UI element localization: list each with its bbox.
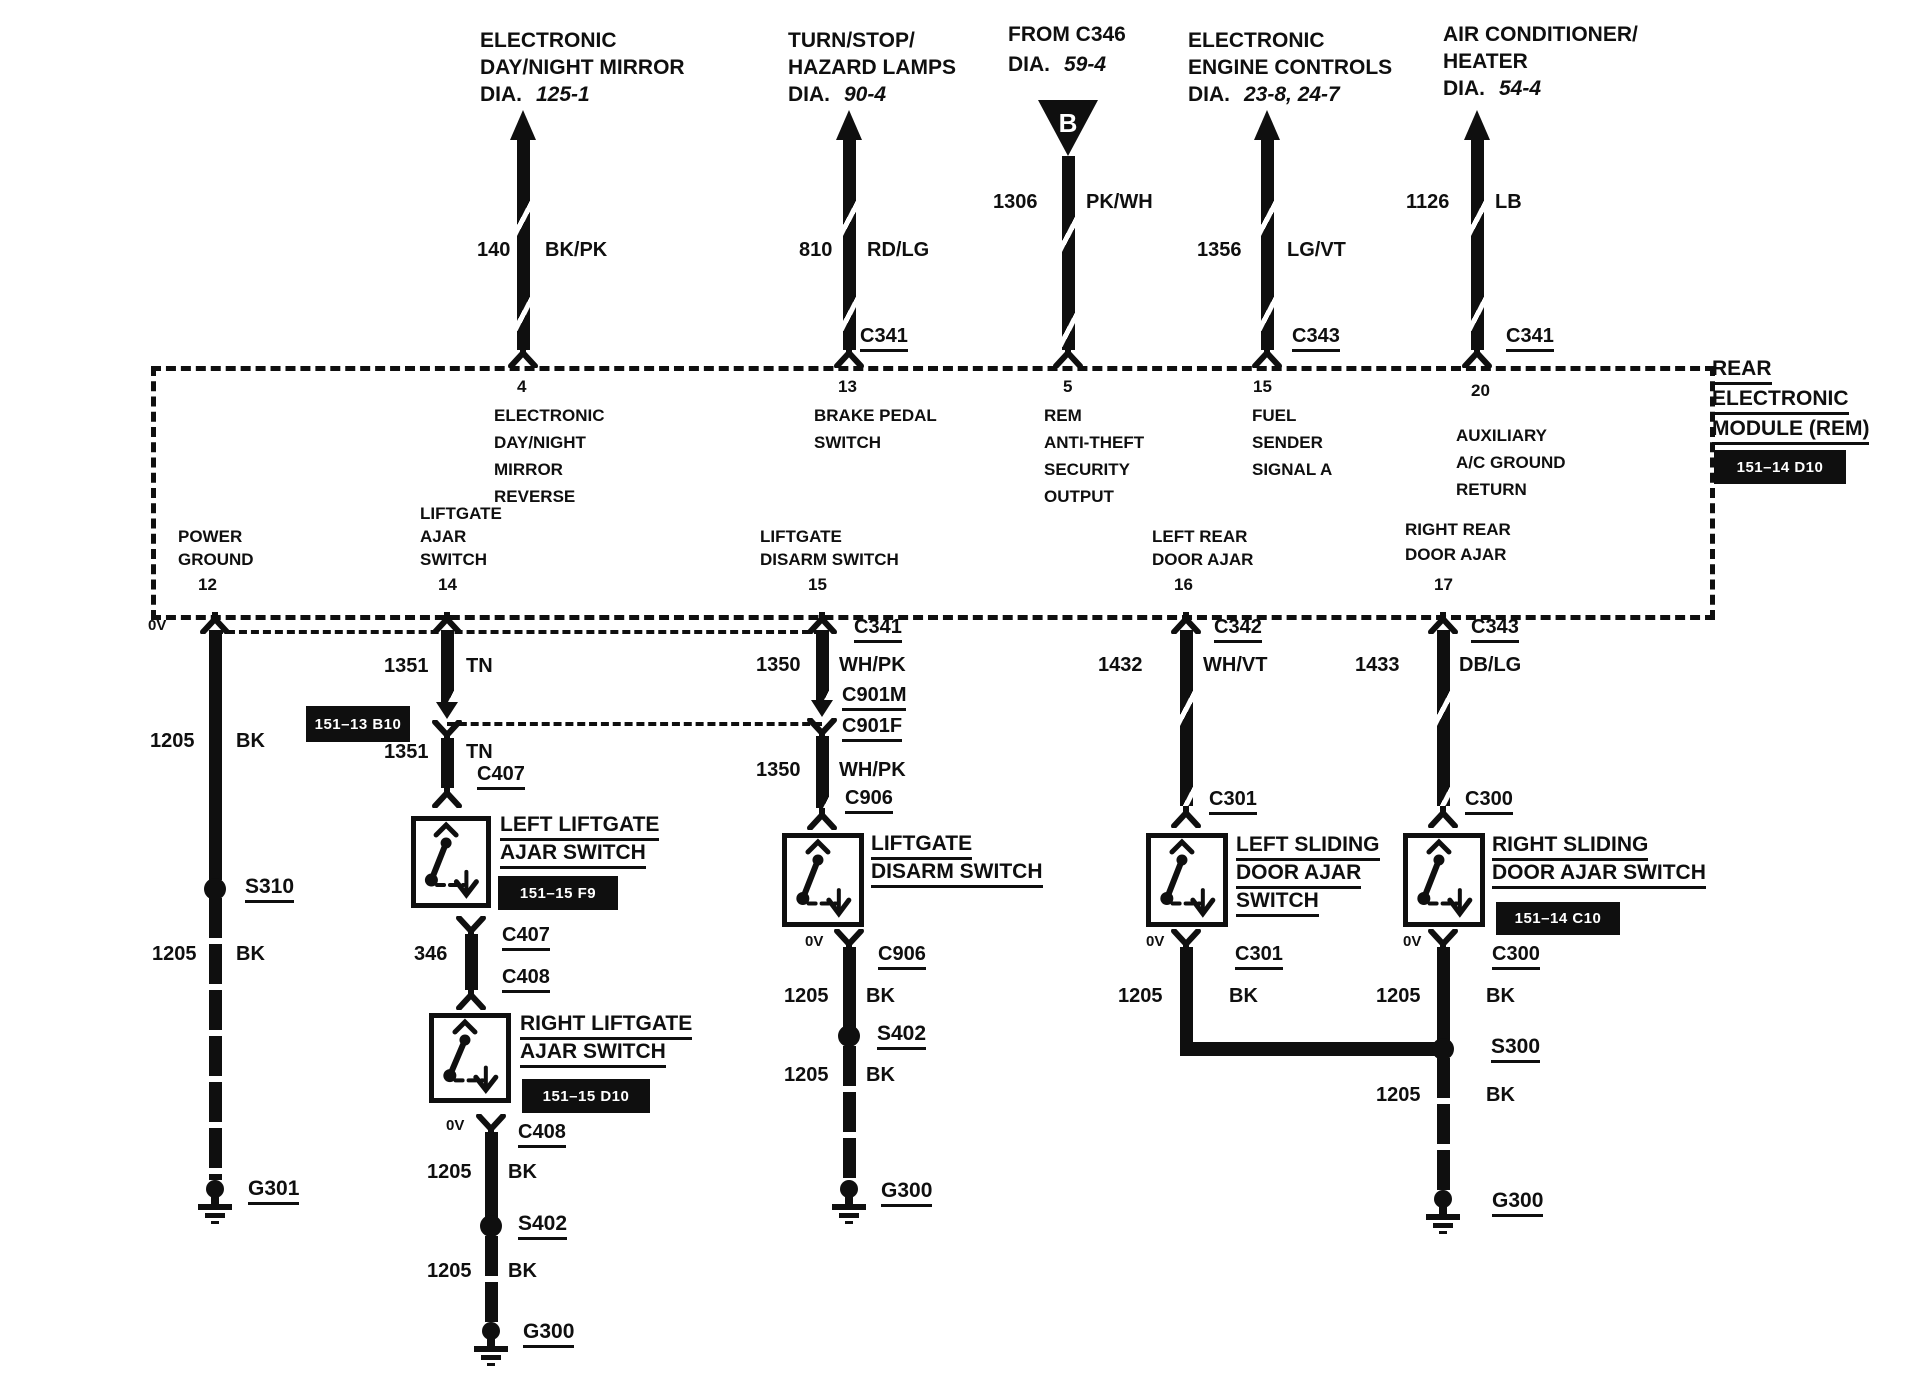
disarm-zero-volt: 0V — [805, 934, 823, 950]
mirror-circuit-title-line2-text: DAY/NIGHT MIRROR — [480, 56, 685, 79]
splice-s402-disarm-label-text: S402 — [877, 1023, 926, 1050]
rem-module-name-line3: MODULE (REM) — [1712, 418, 1869, 445]
pin13-number: 13 — [838, 378, 857, 396]
wire-140-number: 140 — [477, 240, 510, 261]
wire-1433-color: DB/LG — [1459, 655, 1521, 676]
wire-1126-number-text: 1126 — [1406, 191, 1449, 213]
mirror-circuit-title-line1-text: ELECTRONIC — [480, 29, 617, 52]
wire-1205-disarm-upper-color: BK — [866, 986, 895, 1007]
pin17-number: 17 — [1434, 576, 1453, 594]
from-c346-dia-value: 59-4 — [1064, 53, 1106, 76]
engine-controls-title-line2-text: ENGINE CONTROLS — [1188, 56, 1392, 79]
wire-1306-color: PK/WH — [1086, 192, 1153, 213]
wire-1433-number-text: 1433 — [1355, 654, 1400, 676]
wire-1350-upper — [816, 630, 829, 700]
pin20-desc-line2: A/C GROUND — [1456, 454, 1566, 472]
wire-1205-joining-run — [1180, 1042, 1450, 1056]
pin4-number: 4 — [517, 378, 526, 396]
left-sliding-door-switch-name3: SWITCH — [1236, 890, 1319, 917]
from-c346-title-text: FROM C346 — [1008, 23, 1126, 46]
pin4-number-text: 4 — [517, 377, 526, 396]
splice-s402-liftgate — [480, 1215, 502, 1237]
liftgate-disarm-switch-name1: LIFTGATE — [871, 833, 972, 860]
ground-g300-sliding-label: G300 — [1492, 1190, 1543, 1217]
turn-stop-title-line2-text: HAZARD LAMPS — [788, 56, 956, 79]
wire-1351-male-arrow — [436, 702, 458, 719]
left-sliding-zero-volt: 0V — [1146, 934, 1164, 950]
wire-1205-left-sliding-color-text: BK — [1229, 985, 1258, 1007]
wire-1306-number-text: 1306 — [993, 191, 1038, 213]
wire-1350-lower-color: WH/PK — [839, 760, 906, 781]
wire-1351-upper-number-text: 1351 — [384, 655, 429, 677]
right-liftgate-ajar-switch-name2: AJAR SWITCH — [520, 1041, 666, 1068]
wire-1350-lower-number-text: 1350 — [756, 759, 801, 781]
splice-s402-disarm — [838, 1025, 860, 1047]
connector-c343-rem-label: C343 — [1471, 617, 1519, 643]
pin13-desc-line1: BRAKE PEDAL — [814, 407, 937, 425]
wire-1205-disarm-lower — [843, 1046, 856, 1180]
wire-1350-lower-color-text: WH/PK — [839, 759, 906, 781]
from-c346-dia-text: DIA. — [1008, 53, 1050, 76]
splice-s300-label: S300 — [1491, 1036, 1540, 1063]
ground-g300-sliding-label-text: G300 — [1492, 1190, 1543, 1217]
pin4-desc-line2: DAY/NIGHT — [494, 434, 586, 452]
ac-heater-title-line2-text: HEATER — [1443, 50, 1528, 73]
ac-heater-dia: DIA.54-4 — [1443, 78, 1541, 100]
connector-c343-engine-label-text: C343 — [1292, 326, 1340, 352]
pin20-desc-line1: AUXILIARY — [1456, 427, 1547, 445]
wire-1356-number: 1356 — [1197, 240, 1242, 261]
wire-1205-disarm-lower-number: 1205 — [784, 1065, 829, 1086]
ac-heater-title-line1: AIR CONDITIONER/ — [1443, 24, 1638, 46]
pin20-desc-line3: RETURN — [1456, 481, 1527, 499]
rem-module-name-line3-text: MODULE (REM) — [1712, 418, 1869, 445]
left-sliding-door-ajar-switch-box — [1146, 833, 1228, 927]
right-sliding-door-switch-name2-text: DOOR AJAR SWITCH — [1492, 862, 1706, 889]
pin15-top-desc-line1-text: FUEL — [1252, 406, 1296, 425]
pin14-desc-line1-text: LIFTGATE — [420, 504, 502, 523]
wire-1205-right-sliding-lower-color-text: BK — [1486, 1084, 1515, 1106]
connector-c906-upper-label: C906 — [845, 788, 893, 814]
wire-1350-upper-color: WH/PK — [839, 655, 906, 676]
grid-ref-151-13-b10: 151–13 B10 — [306, 706, 410, 742]
ground-g301-symbol — [197, 1180, 233, 1229]
turn-stop-dia-value: 90-4 — [844, 83, 886, 106]
connector-c301-lower-label: C301 — [1235, 944, 1283, 970]
wire-1205-left-sliding-number-text: 1205 — [1118, 985, 1163, 1007]
wire-1351-upper — [441, 630, 454, 702]
wire-1432-color: WH/VT — [1203, 655, 1267, 676]
engine-controls-title-line1: ELECTRONIC — [1188, 30, 1325, 52]
wire-1306-color-text: PK/WH — [1086, 191, 1153, 213]
wire-1205-right-sliding-lower-number: 1205 — [1376, 1085, 1421, 1106]
rem-module-grid-ref: 151–14 D10 — [1714, 450, 1846, 484]
ground-g301-label-text: G301 — [248, 1178, 299, 1205]
pin15-desc-line2: DISARM SWITCH — [760, 551, 899, 569]
wire-1205-right-sliding-number: 1205 — [1376, 986, 1421, 1007]
wire-1350-lower-number: 1350 — [756, 760, 801, 781]
right-liftgate-ajar-switch-name2-text: AJAR SWITCH — [520, 1041, 666, 1068]
wire-140 — [517, 140, 530, 350]
pin15-number: 15 — [808, 576, 827, 594]
right-sliding-door-switch-name1-text: RIGHT SLIDING — [1492, 834, 1648, 861]
pin15-top-number: 15 — [1253, 378, 1272, 396]
wire-1205-disarm-lower-color: BK — [866, 1065, 895, 1086]
pin16-desc-line1-text: LEFT REAR — [1152, 527, 1247, 546]
pin15-number-text: 15 — [808, 575, 827, 594]
rem-module-name-line1: REAR — [1712, 358, 1772, 385]
pin15-top-desc-line3: SIGNAL A — [1252, 461, 1332, 479]
wire-1205-pin12-lower-number: 1205 — [152, 944, 197, 965]
pin12-desc-line2-text: GROUND — [178, 550, 254, 569]
splice-s402-liftgate-label-text: S402 — [518, 1213, 567, 1240]
connector-c906-upper-fork — [806, 808, 838, 835]
grid-ref-151-15-d10: 151–15 D10 — [522, 1079, 650, 1113]
rem-module-name-line2-text: ELECTRONIC — [1712, 388, 1849, 415]
wire-1205-pin12-lower-color-text: BK — [236, 943, 265, 965]
wire-1351-lower-color-text: TN — [466, 741, 493, 763]
connector-c301-upper-label: C301 — [1209, 789, 1257, 815]
mirror-circuit-dia-text: DIA. — [480, 83, 522, 106]
pin14-number: 14 — [438, 576, 457, 594]
left-liftgate-ajar-switch-name2: AJAR SWITCH — [500, 842, 646, 869]
connector-c906-lower-label: C906 — [878, 944, 926, 970]
connector-c407-lower-label-text: C407 — [502, 925, 550, 951]
wire-1351-lower — [441, 738, 454, 788]
wire-1205-right-sliding-lower-number-text: 1205 — [1376, 1084, 1421, 1106]
pin15-top-desc-line2-text: SENDER — [1252, 433, 1323, 452]
wire-1432 — [1180, 630, 1193, 806]
pin16-number-text: 16 — [1174, 575, 1193, 594]
wire-346 — [465, 934, 478, 990]
wire-1205-right-sliding-color-text: BK — [1486, 985, 1515, 1007]
mirror-circuit-title-line1: ELECTRONIC — [480, 30, 617, 52]
ground-g300-liftgate-label: G300 — [523, 1321, 574, 1348]
pin14-desc-line2: AJAR — [420, 528, 466, 546]
wire-810-color-text: RD/LG — [867, 239, 929, 261]
zero-volt-reference-line — [215, 630, 822, 634]
wire-1205-pin12-lower-color: BK — [236, 944, 265, 965]
ac-heater-dia-text: DIA. — [1443, 77, 1485, 100]
connector-c300-upper-label-text: C300 — [1465, 789, 1513, 815]
inline-connector-reference-line — [447, 722, 822, 726]
wire-1205-right-sliding-color: BK — [1486, 986, 1515, 1007]
wire-810-number: 810 — [799, 240, 832, 261]
connector-c300-lower-label: C300 — [1492, 944, 1540, 970]
turn-stop-title-line1-text: TURN/STOP/ — [788, 29, 915, 52]
wire-1350-upper-number-text: 1350 — [756, 654, 801, 676]
pin13-number-text: 13 — [838, 377, 857, 396]
connector-c341-ac-label: C341 — [1506, 326, 1554, 352]
pin12-number-text: 12 — [198, 575, 217, 594]
wire-1356-number-text: 1356 — [1197, 239, 1242, 261]
right-sliding-door-switch-name1: RIGHT SLIDING — [1492, 834, 1648, 861]
wire-346-number: 346 — [414, 944, 447, 965]
grid-ref-151-14-c10: 151–14 C10 — [1496, 902, 1620, 935]
from-c346-title: FROM C346 — [1008, 24, 1126, 46]
pin20-desc-line2-text: A/C GROUND — [1456, 453, 1566, 472]
splice-s300-label-text: S300 — [1491, 1036, 1540, 1063]
pin12-desc-line2: GROUND — [178, 551, 254, 569]
pin5-desc-line2: ANTI-THEFT — [1044, 434, 1144, 452]
grid-ref-151-15-f9: 151–15 F9 — [498, 876, 618, 910]
pin15-top-desc-line2: SENDER — [1252, 434, 1323, 452]
wire-1351-upper-color: TN — [466, 656, 493, 677]
connector-c342-label-text: C342 — [1214, 617, 1262, 643]
right-sliding-zero-volt-text: 0V — [1403, 933, 1421, 950]
pin4-desc-line4-text: REVERSE — [494, 487, 575, 506]
pin12-desc-line1-text: POWER — [178, 527, 242, 546]
wire-1126-color-text: LB — [1495, 191, 1522, 213]
wire-1205-liftgate-upper-color: BK — [508, 1162, 537, 1183]
liftgate-disarm-switch-box — [782, 833, 864, 927]
pin20-desc-line3-text: RETURN — [1456, 480, 1527, 499]
wire-1205-liftgate-upper-number: 1205 — [427, 1162, 472, 1183]
pin5-number: 5 — [1063, 378, 1072, 396]
pin4-desc-line3-text: MIRROR — [494, 460, 563, 479]
wire-1350-upper-color-text: WH/PK — [839, 654, 906, 676]
connector-c906-lower-label-text: C906 — [878, 944, 926, 970]
connector-c343-rem-label-text: C343 — [1471, 617, 1519, 643]
ground-g301-label: G301 — [248, 1178, 299, 1205]
wire-1205-left-sliding-color: BK — [1229, 986, 1258, 1007]
wire-140-color: BK/PK — [545, 240, 607, 261]
left-liftgate-ajar-switch-name1: LEFT LIFTGATE — [500, 814, 659, 841]
connector-c341-ac-label-text: C341 — [1506, 326, 1554, 352]
wire-810 — [843, 140, 856, 350]
wire-1205-disarm-upper-number-text: 1205 — [784, 985, 829, 1007]
connector-c901m-label-text: C901M — [842, 685, 906, 711]
connector-c300-upper-label: C300 — [1465, 789, 1513, 815]
wire-1351-lower-number: 1351 — [384, 742, 429, 763]
connector-c901f-label: C901F — [842, 716, 902, 742]
left-sliding-door-switch-name2: DOOR AJAR — [1236, 862, 1361, 889]
left-sliding-door-switch-name1-text: LEFT SLIDING — [1236, 834, 1380, 861]
left-sliding-door-switch-name1: LEFT SLIDING — [1236, 834, 1380, 861]
pin12-zero-volt-text: 0V — [148, 617, 166, 634]
right-sliding-zero-volt: 0V — [1403, 934, 1421, 950]
pin5-desc-line1: REM — [1044, 407, 1082, 425]
wire-1432-color-text: WH/VT — [1203, 654, 1267, 676]
arrow-up-engine-controls — [1254, 110, 1280, 140]
left-liftgate-ajar-switch-box — [411, 816, 491, 908]
arrow-up-mirror — [510, 110, 536, 140]
pin5-desc-line1-text: REM — [1044, 406, 1082, 425]
wire-1432-number-text: 1432 — [1098, 654, 1143, 676]
right-sliding-door-ajar-switch-box — [1403, 833, 1485, 927]
pin16-desc-line1: LEFT REAR — [1152, 528, 1247, 546]
engine-controls-title-line1-text: ELECTRONIC — [1188, 29, 1325, 52]
pin5-desc-line4: OUTPUT — [1044, 488, 1114, 506]
mirror-circuit-dia-value: 125-1 — [536, 83, 590, 106]
right-liftgate-zero-volt-text: 0V — [446, 1117, 464, 1134]
connector-c407-lower-label: C407 — [502, 925, 550, 951]
mirror-circuit-title-line2: DAY/NIGHT MIRROR — [480, 57, 685, 79]
connector-c407-upper-label: C407 — [477, 764, 525, 790]
turn-stop-title-line2: HAZARD LAMPS — [788, 57, 956, 79]
wire-140-number-text: 140 — [477, 239, 510, 261]
wire-1205-right-sliding-lower-color: BK — [1486, 1085, 1515, 1106]
ground-g300-disarm-symbol — [831, 1180, 867, 1229]
pin13-desc-line1-text: BRAKE PEDAL — [814, 406, 937, 425]
ac-heater-dia-value: 54-4 — [1499, 77, 1541, 100]
wire-346-number-text: 346 — [414, 943, 447, 965]
engine-controls-title-line2: ENGINE CONTROLS — [1188, 57, 1392, 79]
wire-1205-left-sliding — [1180, 947, 1193, 1056]
wire-1126 — [1471, 140, 1484, 350]
wire-140-color-text: BK/PK — [545, 239, 607, 261]
connector-c341-rem-label-text: C341 — [854, 617, 902, 643]
wire-1351-upper-number: 1351 — [384, 656, 429, 677]
wiring-diagram: ELECTRONICDAY/NIGHT MIRRORDIA.125-1TURN/… — [0, 0, 1930, 1392]
wire-1205-disarm-upper — [843, 947, 856, 1028]
wire-1205-pin12-lower — [209, 898, 222, 1180]
connector-c408-upper-label-text: C408 — [502, 967, 550, 993]
connector-c301-upper-label-text: C301 — [1209, 789, 1257, 815]
splice-s310-label-text: S310 — [245, 876, 294, 903]
pin4-desc-line2-text: DAY/NIGHT — [494, 433, 586, 452]
connector-c301-upper-fork — [1170, 806, 1202, 833]
pin15-top-desc-line3-text: SIGNAL A — [1252, 460, 1332, 479]
left-liftgate-ajar-switch-name1-text: LEFT LIFTGATE — [500, 814, 659, 841]
wire-1205-right-sliding-number-text: 1205 — [1376, 985, 1421, 1007]
wire-1205-disarm-upper-number: 1205 — [784, 986, 829, 1007]
wire-1205-liftgate-lower-color: BK — [508, 1261, 537, 1282]
ac-heater-title-line1-text: AIR CONDITIONER/ — [1443, 23, 1638, 46]
splice-s402-liftgate-label: S402 — [518, 1213, 567, 1240]
pin12-number: 12 — [198, 576, 217, 594]
connector-c300-lower-label-text: C300 — [1492, 944, 1540, 970]
pin15-top-desc-line1: FUEL — [1252, 407, 1296, 425]
from-c346-dia: DIA.59-4 — [1008, 54, 1106, 76]
connector-c901m-label: C901M — [842, 685, 906, 711]
ground-g300-liftgate-label-text: G300 — [523, 1321, 574, 1348]
pin15-desc-line1: LIFTGATE — [760, 528, 842, 546]
rem-module-name-line2: ELECTRONIC — [1712, 388, 1849, 415]
connector-c901f-label-text: C901F — [842, 716, 902, 742]
connector-c343-engine-label: C343 — [1292, 326, 1340, 352]
wire-1205-pin12-color-text: BK — [236, 730, 265, 752]
wire-1205-liftgate-lower — [485, 1236, 498, 1322]
left-liftgate-ajar-switch-name2-text: AJAR SWITCH — [500, 842, 646, 869]
wire-1351-lower-number-text: 1351 — [384, 741, 429, 763]
wire-1205-disarm-lower-number-text: 1205 — [784, 1064, 829, 1086]
engine-controls-dia-value: 23-8, 24-7 — [1244, 83, 1340, 106]
wire-1350-lower — [816, 736, 829, 808]
connector-c407-upper-label-text: C407 — [477, 764, 525, 790]
engine-controls-dia: DIA.23-8, 24-7 — [1188, 84, 1340, 106]
connector-c301-lower-label-text: C301 — [1235, 944, 1283, 970]
liftgate-disarm-switch-name2-text: DISARM SWITCH — [871, 861, 1043, 888]
right-liftgate-ajar-switch-name1: RIGHT LIFTGATE — [520, 1013, 692, 1040]
liftgate-disarm-switch-name1-text: LIFTGATE — [871, 833, 972, 860]
left-sliding-zero-volt-text: 0V — [1146, 933, 1164, 950]
ground-g300-liftgate-symbol — [473, 1322, 509, 1371]
connector-c906-upper-label-text: C906 — [845, 788, 893, 814]
connector-b-triangle: B — [1036, 98, 1100, 163]
ground-g300-disarm-label: G300 — [881, 1180, 932, 1207]
arrow-up-ac-heater — [1464, 110, 1490, 140]
wire-1205-disarm-upper-color-text: BK — [866, 985, 895, 1007]
mirror-circuit-dia: DIA.125-1 — [480, 84, 590, 106]
pin20-number: 20 — [1471, 382, 1490, 400]
pin16-desc-line2: DOOR AJAR — [1152, 551, 1253, 569]
wire-1205-liftgate-upper-number-text: 1205 — [427, 1161, 472, 1183]
left-sliding-door-switch-name2-text: DOOR AJAR — [1236, 862, 1361, 889]
wire-1356-color: LG/VT — [1287, 240, 1346, 261]
right-liftgate-ajar-switch-name1-text: RIGHT LIFTGATE — [520, 1013, 692, 1040]
pin4-desc-line1: ELECTRONIC — [494, 407, 605, 425]
wire-1356 — [1261, 140, 1274, 350]
liftgate-disarm-switch-name2: DISARM SWITCH — [871, 861, 1043, 888]
wire-1205-right-sliding-lower — [1437, 1058, 1450, 1190]
ac-heater-title-line2: HEATER — [1443, 51, 1528, 73]
pin12-desc-line1: POWER — [178, 528, 242, 546]
turn-stop-dia: DIA.90-4 — [788, 84, 886, 106]
wire-1205-disarm-lower-color-text: BK — [866, 1064, 895, 1086]
wire-810-number-text: 810 — [799, 239, 832, 261]
pin14-number-text: 14 — [438, 575, 457, 594]
splice-s310-label: S310 — [245, 876, 294, 903]
wire-1351-upper-color-text: TN — [466, 655, 493, 677]
pin14-desc-line1: LIFTGATE — [420, 505, 502, 523]
pin14-desc-line2-text: AJAR — [420, 527, 466, 546]
pin15-desc-line1-text: LIFTGATE — [760, 527, 842, 546]
wire-1205-pin12-number: 1205 — [150, 731, 195, 752]
wire-1306 — [1062, 156, 1075, 350]
connector-c407-upper-fork — [431, 786, 463, 813]
splice-s402-disarm-label: S402 — [877, 1023, 926, 1050]
connector-c342-label: C342 — [1214, 617, 1262, 643]
wire-810-color: RD/LG — [867, 240, 929, 261]
pin16-number: 16 — [1174, 576, 1193, 594]
turn-stop-title-line1: TURN/STOP/ — [788, 30, 915, 52]
connector-c901m-arrow — [811, 700, 833, 717]
pin5-desc-line3: SECURITY — [1044, 461, 1130, 479]
wire-1205-liftgate-lower-color-text: BK — [508, 1260, 537, 1282]
pin17-desc-line1: RIGHT REAR — [1405, 521, 1511, 539]
pin12-zero-volt: 0V — [148, 618, 166, 634]
pin17-desc-line2-text: DOOR AJAR — [1405, 545, 1506, 564]
connector-c300-upper-fork — [1427, 806, 1459, 833]
pin17-desc-line2: DOOR AJAR — [1405, 546, 1506, 564]
wire-1205-liftgate-upper — [485, 1132, 498, 1218]
pin14-desc-line3: SWITCH — [420, 551, 487, 569]
wire-1356-color-text: LG/VT — [1287, 239, 1346, 261]
wire-1433-number: 1433 — [1355, 655, 1400, 676]
splice-s310 — [204, 878, 226, 900]
connector-c341-turnstop-label: C341 — [860, 326, 908, 352]
pin14-desc-line3-text: SWITCH — [420, 550, 487, 569]
arrow-up-turn-stop — [836, 110, 862, 140]
connector-c408-lower-label-text: C408 — [518, 1122, 566, 1148]
ground-g300-sliding-symbol — [1425, 1190, 1461, 1239]
right-liftgate-zero-volt: 0V — [446, 1118, 464, 1134]
pin4-desc-line4: REVERSE — [494, 488, 575, 506]
pin13-desc-line2: SWITCH — [814, 434, 881, 452]
pin5-desc-line4-text: OUTPUT — [1044, 487, 1114, 506]
right-liftgate-ajar-switch-box — [429, 1013, 511, 1103]
wire-1205-liftgate-upper-color-text: BK — [508, 1161, 537, 1183]
connector-c341-turnstop-label-text: C341 — [860, 326, 908, 352]
wire-1350-upper-number: 1350 — [756, 655, 801, 676]
rem-module-name-line1-text: REAR — [1712, 358, 1772, 385]
left-sliding-door-switch-name3-text: SWITCH — [1236, 890, 1319, 917]
pin17-desc-line1-text: RIGHT REAR — [1405, 520, 1511, 539]
wire-1205-liftgate-lower-number: 1205 — [427, 1261, 472, 1282]
wire-1205-pin12-upper — [209, 630, 222, 880]
pin20-desc-line1-text: AUXILIARY — [1456, 426, 1547, 445]
